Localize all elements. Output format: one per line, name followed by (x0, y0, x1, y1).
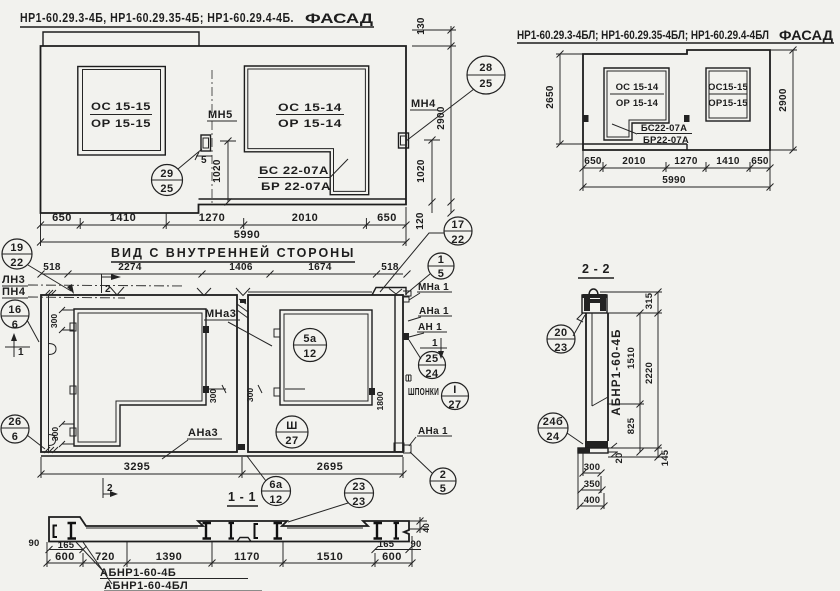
svg-text:Ш: Ш (286, 420, 298, 432)
svg-text:2900: 2900 (778, 88, 789, 112)
svg-text:ОР15-15: ОР15-15 (708, 98, 748, 109)
svg-text:24: 24 (425, 368, 439, 380)
svg-text:МНа 1: МНа 1 (418, 282, 449, 293)
svg-text:350: 350 (584, 479, 600, 490)
svg-text:ЛН3: ЛН3 (2, 274, 25, 286)
svg-text:2: 2 (440, 469, 447, 481)
svg-text:2010: 2010 (292, 212, 318, 224)
svg-text:АНа 1: АНа 1 (419, 306, 449, 317)
svg-text:ШПОНКИ: ШПОНКИ (408, 387, 439, 398)
svg-text:ОР 15-14: ОР 15-14 (278, 118, 342, 130)
svg-text:БС22-07А: БС22-07А (641, 123, 687, 134)
svg-text:ОС 15-14: ОС 15-14 (278, 102, 342, 114)
svg-text:1: 1 (432, 338, 438, 349)
svg-text:АНа 1: АНа 1 (418, 426, 448, 437)
svg-text:1390: 1390 (156, 551, 182, 563)
svg-text:27: 27 (285, 435, 298, 447)
svg-text:МН4: МН4 (411, 98, 436, 110)
svg-text:МНа3: МНа3 (205, 308, 236, 320)
svg-text:АНа3: АНа3 (188, 427, 218, 439)
svg-text:300: 300 (584, 462, 600, 473)
svg-text:ОС15-15: ОС15-15 (708, 82, 748, 93)
svg-text:1270: 1270 (674, 156, 698, 167)
svg-text:5990: 5990 (662, 175, 686, 186)
svg-text:1020: 1020 (416, 159, 427, 183)
svg-text:АБНР1-60-4БЛ: АБНР1-60-4БЛ (104, 580, 188, 591)
svg-text:90: 90 (29, 538, 40, 549)
svg-text:ОС 15-14: ОС 15-14 (616, 82, 659, 93)
svg-text:2650: 2650 (545, 85, 556, 109)
svg-text:24: 24 (546, 431, 560, 443)
svg-text:1510: 1510 (626, 347, 637, 369)
svg-text:17: 17 (451, 219, 464, 231)
svg-text:АБНР1-60-4Б: АБНР1-60-4Б (100, 567, 176, 579)
svg-text:518: 518 (43, 262, 61, 273)
svg-text:400: 400 (584, 495, 600, 506)
svg-text:АБНР1-60-4Б: АБНР1-60-4Б (611, 328, 623, 415)
svg-text:I: I (453, 384, 457, 396)
svg-text:650: 650 (584, 156, 602, 167)
svg-text:23: 23 (352, 496, 365, 508)
svg-text:6: 6 (12, 319, 19, 331)
svg-text:22: 22 (451, 234, 464, 246)
svg-text:НР1-60.29.3-4БЛ; НР1-60.29.35-: НР1-60.29.3-4БЛ; НР1-60.29.35-4БЛ; НР1-6… (517, 30, 769, 42)
svg-text:ФАСАД: ФАСАД (779, 28, 833, 43)
svg-text:5: 5 (438, 268, 445, 280)
svg-text:23: 23 (352, 481, 365, 493)
svg-text:ОС 15-15: ОС 15-15 (91, 101, 151, 113)
svg-text:145: 145 (660, 449, 671, 466)
svg-text:650: 650 (751, 156, 769, 167)
svg-text:300: 300 (49, 314, 59, 328)
svg-text:28: 28 (479, 62, 492, 74)
svg-text:40: 40 (421, 523, 431, 533)
svg-text:5: 5 (440, 483, 447, 495)
svg-text:1: 1 (438, 254, 445, 266)
svg-text:600: 600 (382, 551, 402, 563)
svg-text:20: 20 (554, 327, 567, 339)
svg-text:20: 20 (614, 453, 625, 464)
svg-text:1 - 1: 1 - 1 (228, 490, 256, 504)
svg-text:130: 130 (416, 17, 427, 35)
svg-text:24б: 24б (543, 416, 564, 428)
svg-text:315: 315 (644, 292, 655, 309)
svg-text:ОР 15-14: ОР 15-14 (616, 98, 659, 109)
svg-text:2 - 2: 2 - 2 (582, 262, 610, 276)
svg-text:1020: 1020 (212, 159, 223, 183)
svg-text:МН5: МН5 (208, 109, 233, 121)
svg-text:2274: 2274 (118, 262, 142, 273)
svg-text:25: 25 (425, 353, 438, 365)
svg-text:АН 1: АН 1 (418, 322, 442, 333)
svg-text:19: 19 (10, 242, 23, 254)
svg-text:300: 300 (50, 427, 60, 441)
svg-text:22: 22 (10, 257, 23, 269)
svg-text:300: 300 (245, 388, 255, 402)
svg-text:2220: 2220 (644, 362, 655, 384)
svg-text:1: 1 (18, 347, 24, 358)
svg-text:27: 27 (448, 399, 461, 411)
svg-text:2: 2 (107, 483, 113, 494)
svg-text:29: 29 (160, 168, 173, 180)
svg-text:23: 23 (554, 342, 567, 354)
svg-text:1410: 1410 (716, 156, 740, 167)
svg-text:518: 518 (381, 262, 399, 273)
svg-text:600: 600 (55, 551, 75, 563)
svg-text:1270: 1270 (199, 212, 225, 224)
svg-text:650: 650 (377, 212, 397, 224)
svg-text:6: 6 (12, 431, 19, 443)
svg-text:25: 25 (479, 78, 492, 90)
svg-text:120: 120 (415, 212, 426, 230)
svg-text:ВИД С ВНУТРЕННЕЙ СТОРОНЫ: ВИД С ВНУТРЕННЕЙ СТОРОНЫ (111, 245, 354, 260)
svg-text:ПН4: ПН4 (2, 286, 26, 298)
svg-text:25: 25 (160, 183, 173, 195)
svg-text:26: 26 (8, 416, 21, 428)
svg-text:1406: 1406 (229, 262, 253, 273)
svg-text:1170: 1170 (234, 551, 260, 563)
svg-text:165: 165 (58, 540, 75, 551)
svg-text:БР 22-07А: БР 22-07А (261, 181, 331, 193)
svg-text:3295: 3295 (124, 461, 150, 473)
svg-text:2695: 2695 (317, 461, 343, 473)
svg-text:16: 16 (8, 304, 21, 316)
svg-text:300: 300 (208, 389, 218, 403)
svg-text:165: 165 (378, 539, 395, 550)
svg-text:5990: 5990 (234, 229, 260, 241)
svg-text:БР22-07А: БР22-07А (643, 135, 689, 146)
svg-text:5а: 5а (303, 333, 317, 345)
svg-text:5: 5 (201, 155, 207, 166)
svg-text:1674: 1674 (308, 262, 332, 273)
svg-text:2: 2 (105, 284, 111, 295)
svg-text:НР1-60.29.3-4Б, НР1-60.29.35-4: НР1-60.29.3-4Б, НР1-60.29.35-4Б; НР1-60.… (20, 11, 294, 25)
svg-text:650: 650 (52, 212, 72, 224)
svg-text:БС 22-07А: БС 22-07А (259, 165, 329, 177)
svg-text:825: 825 (626, 417, 637, 434)
svg-text:2010: 2010 (622, 156, 646, 167)
svg-text:2900: 2900 (436, 106, 447, 130)
svg-text:12: 12 (303, 348, 316, 360)
svg-text:1410: 1410 (110, 212, 136, 224)
svg-text:12: 12 (269, 494, 282, 506)
svg-text:6а: 6а (269, 479, 283, 491)
svg-text:ОР 15-15: ОР 15-15 (91, 118, 151, 130)
svg-text:720: 720 (95, 551, 115, 563)
svg-text:1510: 1510 (317, 551, 343, 563)
svg-text:1800: 1800 (375, 391, 385, 410)
svg-text:ФАСАД: ФАСАД (305, 10, 373, 26)
